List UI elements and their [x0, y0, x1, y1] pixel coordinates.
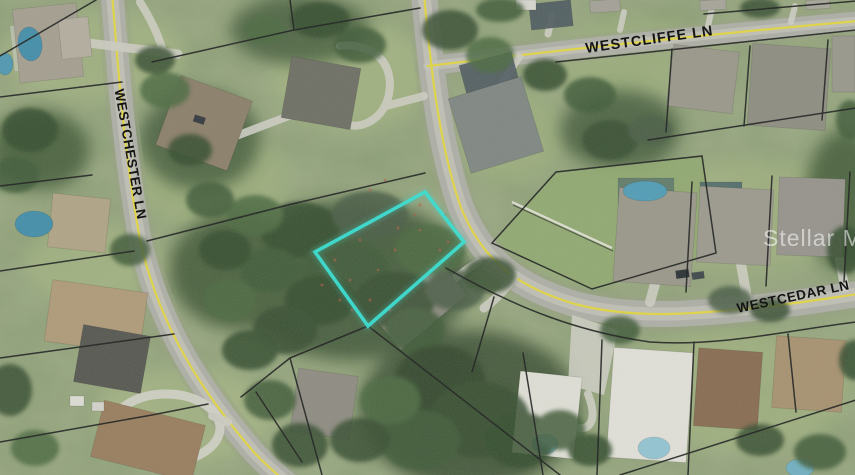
- satellite-map-view: WESTCLIFFE LN WESTCHESTER LN WESTCEDAR L…: [0, 0, 855, 475]
- color-cast: [0, 0, 855, 475]
- map-image: WESTCLIFFE LN WESTCHESTER LN WESTCEDAR L…: [0, 0, 855, 475]
- stellar-mls-watermark: Stellar MLS: [763, 225, 855, 251]
